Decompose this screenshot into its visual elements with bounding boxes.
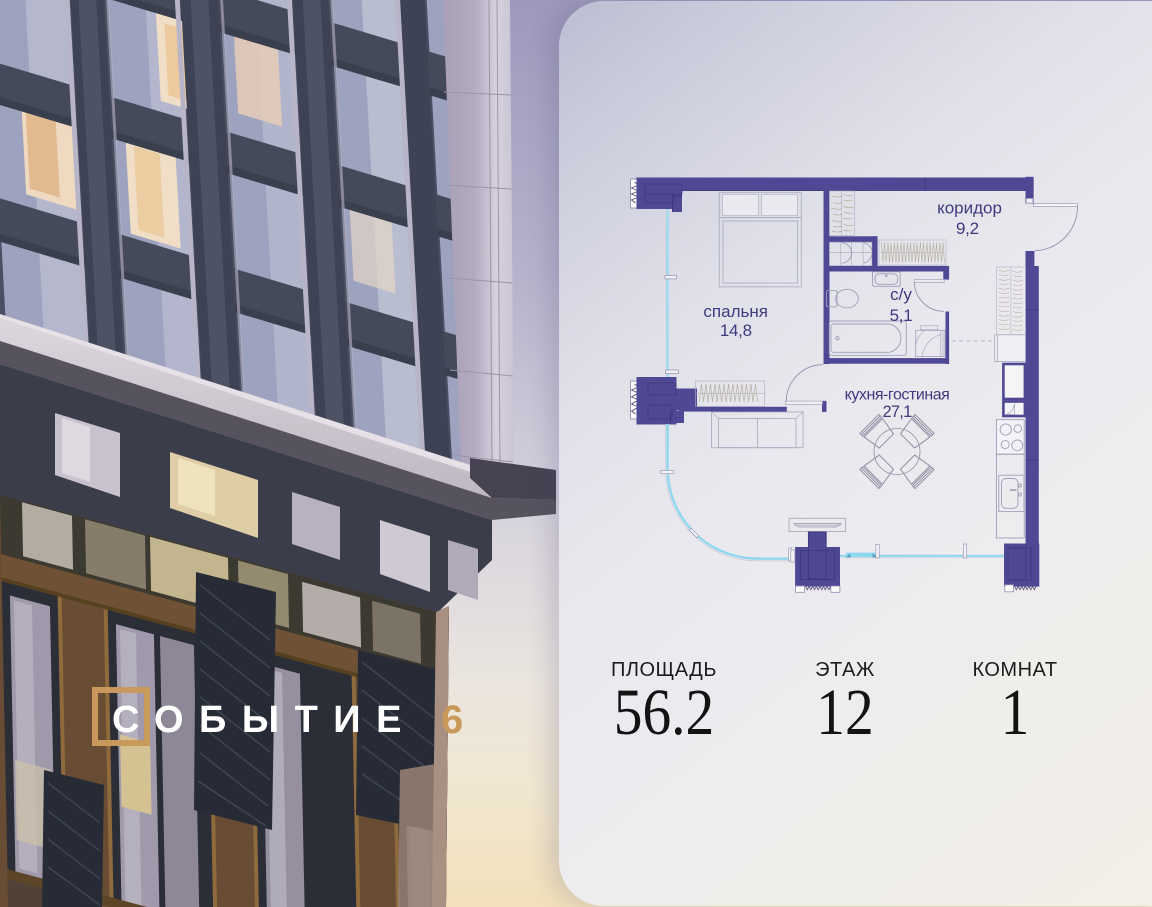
svg-text:14,8: 14,8 [720, 321, 752, 340]
svg-text:спальня: спальня [703, 302, 768, 321]
svg-text:коридор: коридор [937, 199, 1002, 218]
svg-text:кухня-гостиная: кухня-гостиная [845, 387, 950, 404]
svg-text:5,1: 5,1 [890, 306, 913, 325]
svg-text:9,2: 9,2 [956, 219, 979, 238]
svg-text:6: 6 [441, 698, 463, 742]
svg-text:с/у: с/у [890, 285, 912, 304]
svg-text:СОБЫТИЕ: СОБЫТИЕ [112, 699, 417, 741]
svg-text:27,1: 27,1 [883, 403, 913, 421]
